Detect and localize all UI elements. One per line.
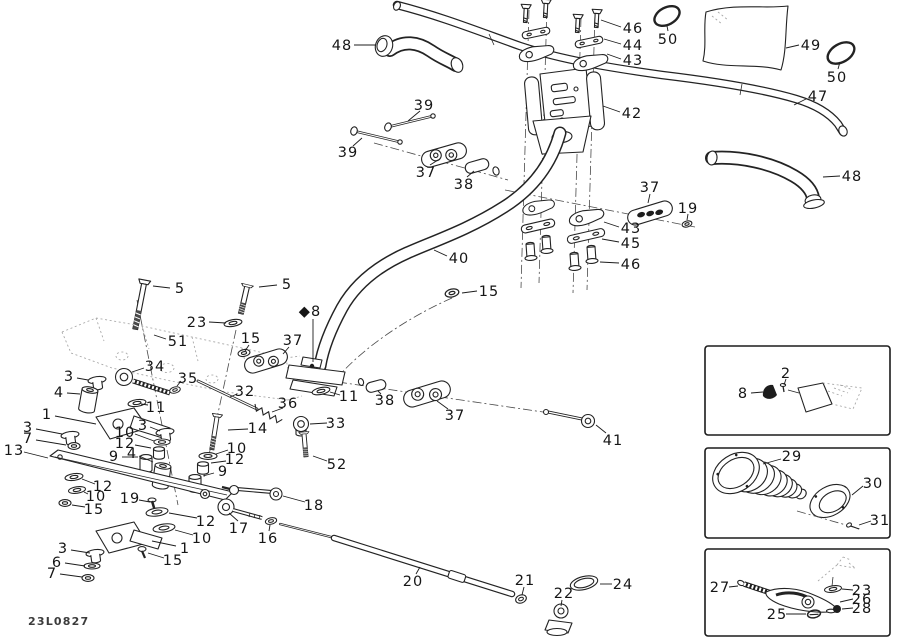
exploded-parts-diagram: 4839393738464443504950474248371943454640… bbox=[0, 0, 900, 640]
leader-line-3 bbox=[77, 378, 88, 380]
callout-label-19: 19 bbox=[120, 491, 140, 507]
callout-label-43: 43 bbox=[623, 53, 643, 69]
callout-label-9: 9 bbox=[218, 464, 228, 480]
tie-rod-long bbox=[280, 524, 599, 636]
leader-line-43 bbox=[607, 54, 621, 59]
handlebar-clamp-bottom bbox=[521, 197, 606, 271]
leader-line-3 bbox=[71, 550, 90, 553]
callout-label-27: 27 bbox=[710, 580, 730, 596]
leader-line-5 bbox=[153, 286, 170, 288]
leader-line-41 bbox=[596, 425, 606, 433]
callout-label-50: 50 bbox=[658, 32, 678, 48]
callout-label-13: 13 bbox=[4, 443, 24, 459]
callout-label-50: 50 bbox=[827, 70, 847, 86]
leader-line-10 bbox=[175, 530, 193, 535]
callout-label-5: 5 bbox=[175, 281, 185, 297]
callout-label-10: 10 bbox=[192, 531, 212, 547]
callout-label-12: 12 bbox=[196, 514, 216, 530]
leader-line-3 bbox=[36, 429, 62, 434]
leader-line-23 bbox=[209, 322, 226, 323]
callout-label-1: 1 bbox=[42, 407, 52, 423]
callout-label-16: 16 bbox=[258, 531, 278, 547]
leader-line-15 bbox=[148, 553, 164, 558]
callout-label-15: 15 bbox=[241, 331, 261, 347]
callout-label-39: 39 bbox=[338, 145, 358, 161]
callout-label-14: 14 bbox=[248, 421, 268, 437]
callout-label-37: 37 bbox=[416, 165, 436, 181]
leader-line-17 bbox=[229, 513, 238, 521]
callout-label-11: 11 bbox=[339, 389, 359, 405]
callout-label-52: 52 bbox=[327, 457, 347, 473]
handlebar-grip-right bbox=[706, 150, 825, 210]
leader-line-34 bbox=[132, 368, 144, 372]
leader-line-46 bbox=[601, 20, 621, 27]
leader-line-15 bbox=[462, 291, 477, 293]
leader-line-44 bbox=[604, 39, 621, 44]
callout-label-20: 20 bbox=[403, 574, 423, 590]
leader-line-1 bbox=[55, 416, 96, 424]
leader-line-20 bbox=[416, 567, 420, 574]
callout-label-7: 7 bbox=[23, 431, 33, 447]
callout-label-42: 42 bbox=[622, 106, 642, 122]
leader-line-18 bbox=[283, 496, 305, 502]
callout-label-23: 23 bbox=[187, 315, 207, 331]
leader-line-46 bbox=[600, 262, 619, 263]
callout-label-51: 51 bbox=[168, 334, 188, 350]
callout-label-33: 33 bbox=[326, 416, 346, 432]
callout-label-9: 9 bbox=[109, 449, 119, 465]
leader-line-30 bbox=[852, 486, 863, 495]
callout-label-2: 2 bbox=[781, 366, 791, 382]
callout-label-22: 22 bbox=[554, 586, 574, 602]
callout-label-8: 8 bbox=[738, 386, 748, 402]
leader-line-12 bbox=[135, 445, 151, 448]
callout-label-48: 48 bbox=[842, 169, 862, 185]
callout-label-39: 39 bbox=[414, 98, 434, 114]
leader-line-27 bbox=[729, 586, 738, 587]
callout-label-15: 15 bbox=[84, 502, 104, 518]
parts-diagram-page: 4839393738464443504950474248371943454640… bbox=[0, 0, 900, 640]
callout-label-5: 5 bbox=[282, 277, 292, 293]
leader-line-6 bbox=[65, 563, 85, 566]
leader-line-14 bbox=[228, 429, 248, 430]
leader-line-8 bbox=[751, 392, 763, 393]
leader-line-50 bbox=[667, 26, 668, 31]
callout-label-38: 38 bbox=[454, 177, 474, 193]
callout-label-3: 3 bbox=[64, 369, 74, 385]
callout-label-36: 36 bbox=[278, 396, 298, 412]
leader-line-4 bbox=[67, 393, 80, 394]
callout-label-35: 35 bbox=[178, 371, 198, 387]
callout-label-37: 37 bbox=[283, 333, 303, 349]
callout-label-4: 4 bbox=[54, 385, 64, 401]
callout-label-11: 11 bbox=[146, 400, 166, 416]
callout-label-21: 21 bbox=[515, 573, 535, 589]
leader-line-12 bbox=[169, 513, 197, 518]
callout-label-18: 18 bbox=[304, 498, 324, 514]
leader-line-7 bbox=[60, 574, 82, 577]
leader-line-51 bbox=[154, 335, 166, 339]
callout-label-31: 31 bbox=[870, 513, 890, 529]
callout-label-38: 38 bbox=[375, 393, 395, 409]
leader-line-45 bbox=[602, 239, 619, 242]
callout-label-8: ◆8 bbox=[299, 304, 321, 320]
callout-label-28: 28 bbox=[852, 601, 872, 617]
callout-label-48: 48 bbox=[332, 38, 352, 54]
callout-label-19: 19 bbox=[678, 201, 698, 217]
callout-label-41: 41 bbox=[603, 433, 623, 449]
grip-rings-and-pad bbox=[651, 2, 858, 70]
callout-label-37: 37 bbox=[640, 180, 660, 196]
callout-label-34: 34 bbox=[145, 359, 165, 375]
leader-line-29 bbox=[763, 459, 781, 464]
callout-label-45: 45 bbox=[621, 236, 641, 252]
callout-label-46: 46 bbox=[621, 257, 641, 273]
leader-line-42 bbox=[603, 106, 620, 112]
callout-label-29: 29 bbox=[782, 449, 802, 465]
callout-label-25: 25 bbox=[767, 607, 787, 623]
callout-label-43: 43 bbox=[621, 221, 641, 237]
leader-line-48 bbox=[823, 176, 840, 177]
callout-label-40: 40 bbox=[449, 251, 469, 267]
leader-line-40 bbox=[434, 250, 447, 256]
callout-label-17: 17 bbox=[229, 521, 249, 537]
callout-label-3: 3 bbox=[138, 418, 148, 434]
handlebar-grip-left bbox=[373, 33, 465, 74]
callout-label-4: 4 bbox=[127, 446, 137, 462]
inset-grommet-detail bbox=[705, 346, 890, 435]
callout-label-30: 30 bbox=[863, 476, 883, 492]
callout-label-32: 32 bbox=[235, 384, 255, 400]
callout-label-15: 15 bbox=[479, 284, 499, 300]
leader-line-13 bbox=[24, 452, 48, 458]
callout-label-47: 47 bbox=[808, 89, 828, 105]
leader-line-43 bbox=[604, 222, 619, 227]
callout-label-24: 24 bbox=[613, 577, 633, 593]
leader-line-52 bbox=[313, 456, 327, 461]
callout-label-46: 46 bbox=[623, 21, 643, 37]
callout-label-7: 7 bbox=[47, 566, 57, 582]
callout-label-15: 15 bbox=[163, 553, 183, 569]
drawing-code: 23L0827 bbox=[28, 615, 89, 628]
callout-label-44: 44 bbox=[623, 38, 643, 54]
callout-label-49: 49 bbox=[801, 38, 821, 54]
leader-line-12 bbox=[211, 461, 226, 463]
leader-line-7 bbox=[36, 440, 66, 445]
leader-line-49 bbox=[786, 45, 799, 48]
leader-line-33 bbox=[310, 423, 327, 424]
leader-line-10 bbox=[135, 434, 154, 441]
callout-label-37: 37 bbox=[445, 408, 465, 424]
leader-line-5 bbox=[259, 285, 277, 287]
